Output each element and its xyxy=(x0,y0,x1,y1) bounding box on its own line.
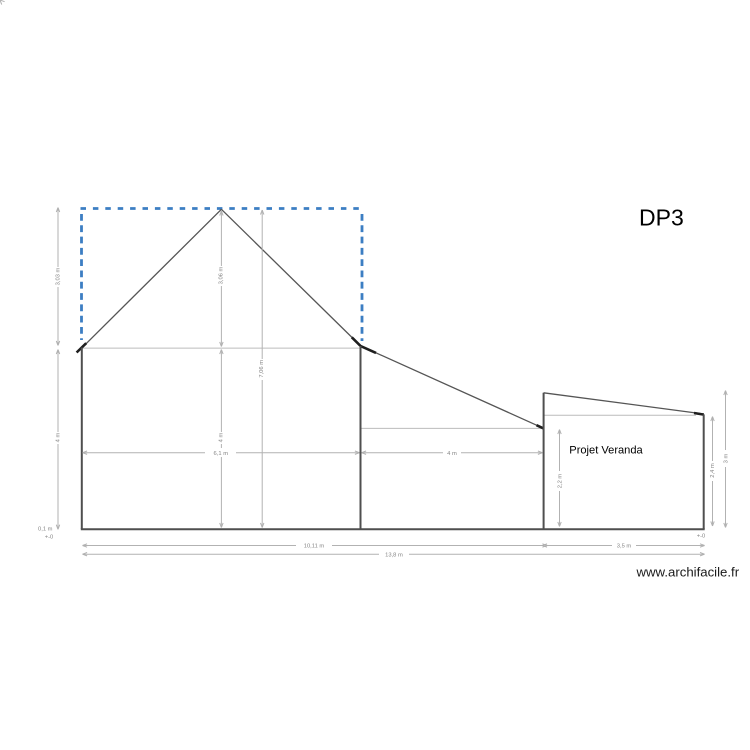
svg-text:+-0: +-0 xyxy=(45,535,54,541)
svg-text:4 m: 4 m xyxy=(56,433,62,443)
svg-text:DP3: DP3 xyxy=(639,205,684,231)
svg-text:2,2 m: 2,2 m xyxy=(558,474,564,489)
svg-text:4 m: 4 m xyxy=(447,451,457,457)
svg-text:3 m: 3 m xyxy=(723,454,729,464)
svg-text:Projet Veranda: Projet Veranda xyxy=(569,444,643,456)
svg-text:2,4 m: 2,4 m xyxy=(710,463,716,478)
svg-text:6,1 m: 6,1 m xyxy=(214,451,229,457)
svg-text:www.archifacile.fr: www.archifacile.fr xyxy=(636,565,740,580)
svg-text:3,06 m: 3,06 m xyxy=(219,266,225,284)
svg-text:+-0: +-0 xyxy=(697,533,706,539)
svg-text:10,11 m: 10,11 m xyxy=(304,544,325,550)
svg-text:3,03 m: 3,03 m xyxy=(56,267,62,285)
svg-text:3,5 m: 3,5 m xyxy=(617,544,632,550)
svg-text:13,8 m: 13,8 m xyxy=(385,552,403,558)
svg-text:7,06 m: 7,06 m xyxy=(259,360,265,378)
svg-text:4 m: 4 m xyxy=(219,433,225,443)
svg-text:0,1 m: 0,1 m xyxy=(38,527,53,533)
